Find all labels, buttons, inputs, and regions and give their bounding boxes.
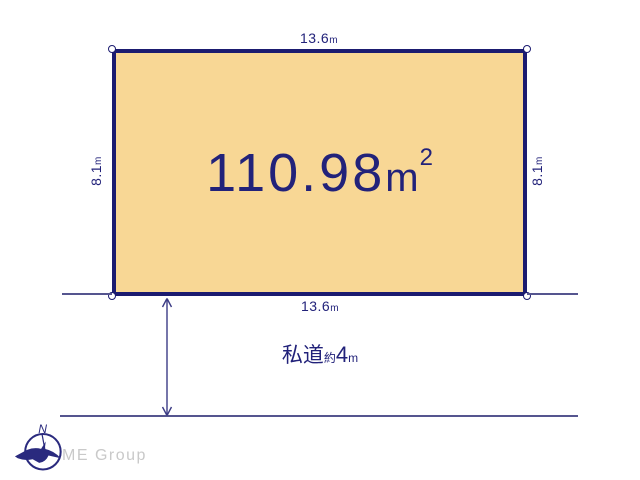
dimension-bottom-unit: m: [330, 303, 339, 314]
dimension-left: 8.1m: [88, 156, 106, 186]
road-width-value: 4: [336, 342, 348, 367]
road-far-edge-line: [60, 415, 578, 417]
boundary-line-left-extension: [62, 293, 112, 295]
boundary-line-right-extension: [527, 293, 578, 295]
dimension-bottom-value: 13.6: [301, 298, 330, 314]
dimension-left-value: 8.1: [88, 165, 104, 186]
dimension-top-unit: m: [329, 35, 338, 46]
corner-marker-top-right: [523, 45, 531, 53]
land-plot: 110.98m2: [112, 49, 527, 296]
road-width-unit: m: [348, 351, 358, 365]
corner-marker-top-left: [108, 45, 116, 53]
road-label: 私道約4m: [282, 339, 358, 369]
dimension-right: 8.1m: [529, 156, 547, 186]
land-plot-diagram: 110.98m2 13.6m 13.6m 8.1m 8.1m 私道約4m N M…: [0, 0, 640, 480]
dimension-top-value: 13.6: [300, 30, 329, 46]
road-width-arrow: [158, 298, 176, 416]
compass-bird-shape: [15, 441, 61, 462]
dimension-top: 13.6m: [300, 30, 338, 48]
dimension-left-unit: m: [93, 156, 104, 165]
area-unit: m: [385, 156, 419, 200]
area-value: 110.98: [206, 143, 385, 203]
road-approx-prefix: 約: [324, 351, 336, 365]
dimension-right-unit: m: [534, 156, 545, 165]
road-name: 私道: [282, 344, 324, 367]
brand-logo-text: ME Group: [62, 447, 147, 465]
compass-north-letter: N: [38, 422, 47, 436]
area-label: 110.98m2: [206, 146, 433, 200]
area-superscript: 2: [420, 144, 433, 171]
dimension-right-value: 8.1: [529, 165, 545, 186]
dimension-bottom: 13.6m: [301, 298, 339, 316]
